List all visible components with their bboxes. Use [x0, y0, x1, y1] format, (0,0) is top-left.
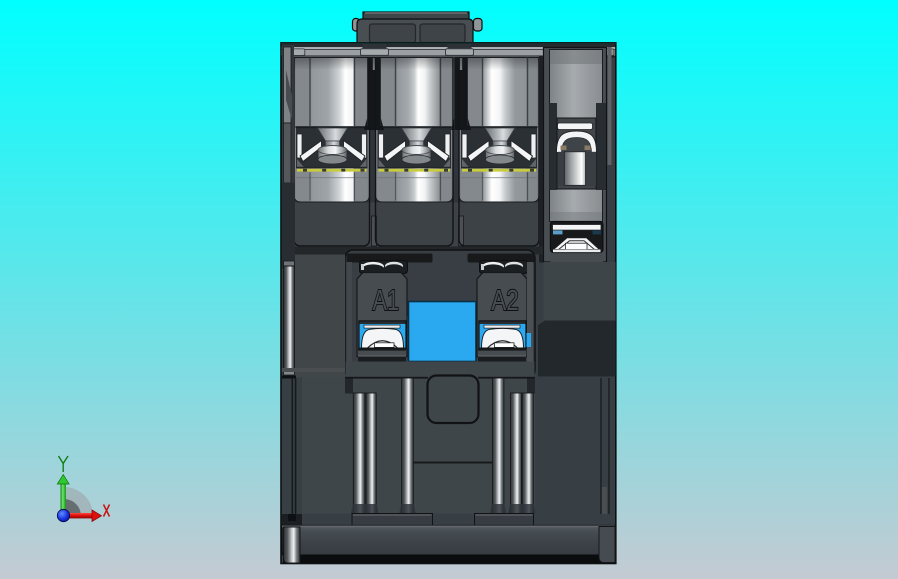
svg-text:A2: A2 [491, 285, 519, 317]
svg-text:A1: A1 [373, 285, 400, 317]
